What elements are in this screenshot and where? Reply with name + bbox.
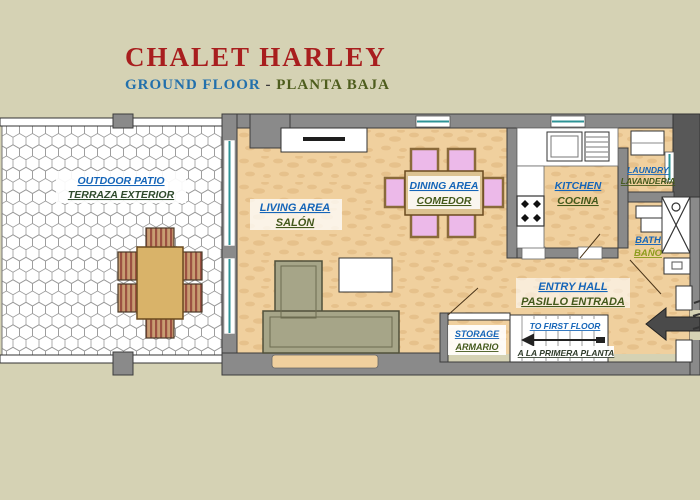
stove [517,196,544,226]
floor-plan-canvas: CHALET HARLEY GROUND FLOOR - PLANTA BAJA… [0,0,700,500]
page-title: CHALET HARLEY [125,42,387,72]
dish-rack [585,132,609,161]
patio-dining-table [137,247,183,319]
kitchen-left-wall [507,128,517,258]
doorstep [272,355,378,368]
entry-label-en: ENTRY HALL [538,281,608,293]
top-wall [222,114,700,128]
storage-label-en: STORAGE [455,329,500,339]
storage-left-wall [440,313,448,362]
patio-tile-floor [2,121,236,357]
dining-label-en: DINING AREA [409,180,478,192]
patio-wall-post-bottom [113,352,133,375]
door-jamb [676,340,692,362]
patio-wall-post-top [113,114,133,128]
stairs-label-en: TO FIRST FLOOR [530,321,602,331]
patio-label-en: OUTDOOR PATIO [77,175,164,187]
kitchen-label-es: COCINA [557,195,598,207]
washing-machine [631,131,664,155]
shower [662,197,690,253]
kitchen-label-en: KITCHEN [555,180,602,192]
shower-drain [672,203,680,211]
subtitle-separator: - [261,77,277,93]
door-jamb [676,286,692,310]
patio-chair [146,228,174,249]
room-entry-hall: ENTRY HALL PASILLO ENTRADA [516,278,630,308]
page-subtitle: GROUND FLOOR - PLANTA BAJA [125,77,390,93]
bath-sink [664,258,690,274]
storage-top-wall [440,313,510,320]
subtitle-spanish: PLANTA BAJA [276,77,390,93]
bath-label-en: BATH [635,235,662,246]
laundry-label-es: LAVANDERIA [621,176,675,186]
patio-chair [182,284,202,312]
doorway-kitchen [522,247,545,259]
dining-chair [411,214,438,237]
patio-chair [146,317,174,338]
dining-chair [385,178,405,207]
dining-chair [411,149,438,172]
room-outdoor-patio: OUTDOOR PATIO TERRAZA EXTERIOR [0,114,237,375]
dining-chair [448,149,475,172]
dining-label-es: COMEDOR [417,195,472,207]
dining-chair [483,178,503,207]
coffee-table [339,258,392,292]
laundry-left-wall [618,148,628,248]
patio-label-es: TERRAZA EXTERIOR [68,189,175,201]
fireplace-insert [303,137,345,141]
living-label-en: LIVING AREA [260,202,331,214]
patio-chair [118,284,138,312]
bath-label-es: BAÑO [634,248,663,259]
floor-plan-page: CHALET HARLEY GROUND FLOOR - PLANTA BAJA… [0,0,700,500]
patio-chair [182,252,202,280]
staircase: TO FIRST FLOOR A LA PRIMERA PLANTA [510,315,614,362]
living-label-es: SALÓN [276,216,316,229]
storage-label-es: ARMARIO [455,342,499,352]
patio-bottom-wall [0,355,224,363]
kitchen-sink [547,132,582,161]
entry-label-es: PASILLO ENTRADA [521,296,625,308]
doorway-hall [578,247,602,259]
patio-chair [118,252,138,280]
dark-wall-block [673,114,700,197]
dining-chair [448,214,475,237]
stairs-label-es: A LA PRIMERA PLANTA [517,348,615,358]
subtitle-english: GROUND FLOOR [125,77,261,93]
laundry-label-en: LAUNDRY [627,165,670,175]
